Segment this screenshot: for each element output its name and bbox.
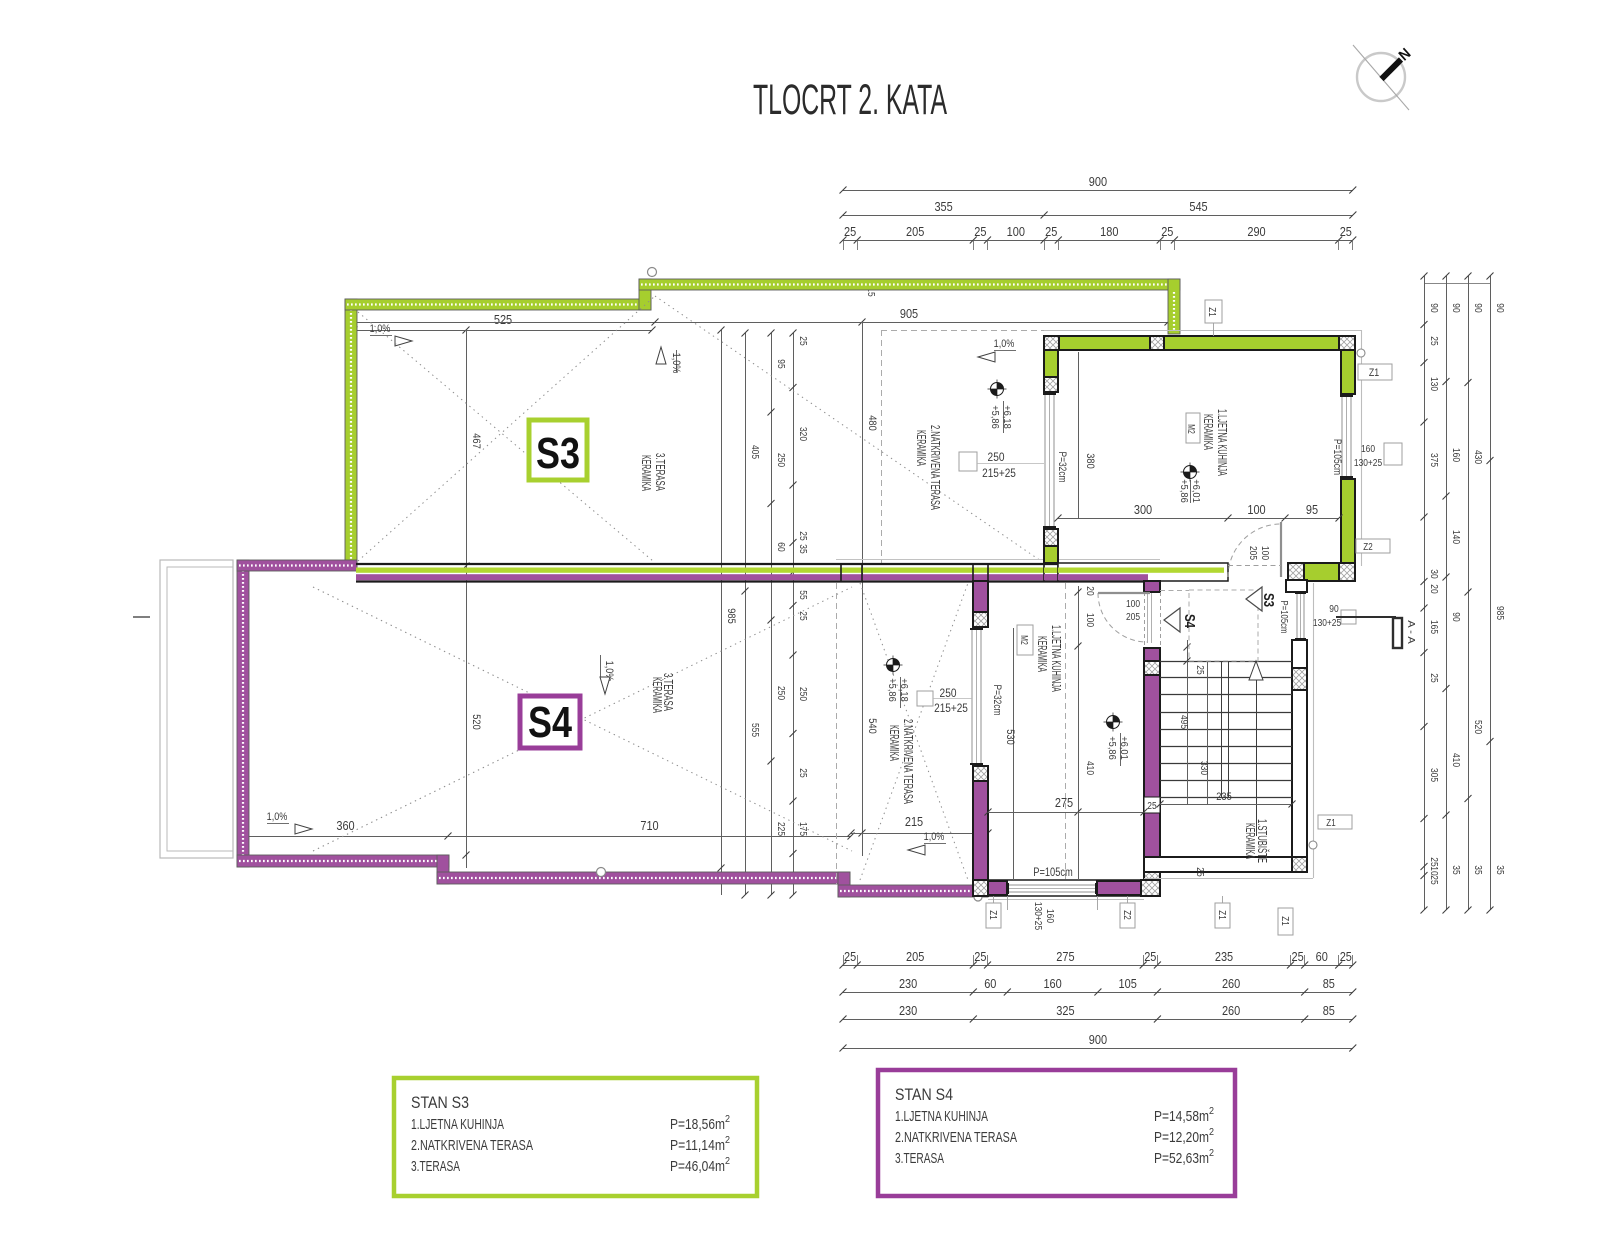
svg-text:530: 530 [1004, 729, 1016, 745]
svg-text:300: 300 [1134, 502, 1152, 517]
svg-text:320: 320 [797, 427, 808, 441]
svg-text:A - A: A - A [1405, 620, 1416, 644]
svg-text:P=18,56m: P=18,56m [670, 1116, 725, 1133]
svg-text:25: 25 [1194, 867, 1205, 877]
svg-text:520: 520 [1472, 720, 1483, 734]
svg-text:25: 25 [1045, 224, 1057, 239]
svg-text:25: 25 [797, 768, 808, 778]
svg-text:+5,86: +5,86 [989, 405, 1000, 429]
svg-text:25: 25 [1144, 949, 1156, 964]
svg-text:355: 355 [934, 199, 952, 214]
svg-text:25: 25 [844, 224, 856, 239]
svg-text:130+25: 130+25 [1032, 902, 1043, 931]
svg-text:1,0%: 1,0% [267, 811, 288, 823]
svg-text:225: 225 [775, 822, 786, 836]
svg-text:KERAMIKA: KERAMIKA [1035, 636, 1049, 672]
svg-text:30: 30 [1428, 569, 1439, 579]
svg-text:Z2: Z2 [1121, 910, 1132, 920]
svg-text:100: 100 [1259, 546, 1270, 560]
svg-text:90: 90 [1329, 604, 1339, 615]
svg-text:P=14,58m: P=14,58m [1154, 1108, 1209, 1125]
svg-text:495: 495 [1178, 715, 1189, 729]
svg-text:S4: S4 [528, 698, 572, 747]
svg-text:2.NATKRIVENA TERASA: 2.NATKRIVENA TERASA [895, 1129, 1017, 1146]
svg-text:90: 90 [1450, 612, 1461, 622]
svg-text:KERAMIKA: KERAMIKA [887, 725, 901, 761]
svg-text:430: 430 [1472, 450, 1483, 464]
svg-text:1.LJETNA KUHINJA: 1.LJETNA KUHINJA [1215, 409, 1229, 476]
svg-text:3.TERASA: 3.TERASA [895, 1150, 944, 1167]
svg-text:2: 2 [1209, 1127, 1214, 1138]
svg-text:1,0%: 1,0% [670, 353, 682, 374]
svg-text:P=46,04m: P=46,04m [670, 1158, 725, 1175]
svg-text:P=11,14m: P=11,14m [670, 1137, 725, 1154]
svg-text:TLOCRT 2. KATA: TLOCRT 2. KATA [753, 76, 947, 124]
svg-text:1,0%: 1,0% [370, 323, 391, 335]
svg-text:467: 467 [470, 433, 482, 449]
svg-text:165: 165 [1428, 620, 1439, 634]
svg-text:M2: M2 [1018, 635, 1029, 645]
svg-text:25: 25 [974, 224, 986, 239]
svg-text:90: 90 [1494, 303, 1505, 313]
svg-text:Z1: Z1 [1206, 307, 1217, 317]
svg-text:25: 25 [1340, 949, 1352, 964]
svg-text:25: 25 [797, 531, 808, 541]
svg-text:25: 25 [1147, 801, 1157, 812]
svg-text:95: 95 [775, 359, 786, 369]
svg-text:250: 250 [797, 687, 808, 701]
svg-text:250: 250 [940, 686, 957, 700]
svg-text:130+25: 130+25 [1313, 618, 1342, 629]
svg-text:235: 235 [1215, 949, 1233, 964]
svg-text:25: 25 [797, 336, 808, 346]
svg-text:S4: S4 [1181, 614, 1198, 629]
svg-text:985: 985 [1494, 606, 1505, 620]
svg-text:KERAMIKA: KERAMIKA [1243, 823, 1257, 859]
svg-text:35: 35 [1472, 865, 1483, 875]
svg-text:160: 160 [1361, 444, 1375, 455]
svg-text:525: 525 [494, 312, 512, 327]
svg-text:100: 100 [1084, 613, 1095, 627]
svg-text:215: 215 [905, 814, 923, 829]
svg-text:25: 25 [1161, 224, 1173, 239]
svg-text:25: 25 [1428, 673, 1439, 683]
svg-text:35: 35 [797, 544, 808, 554]
svg-text:S3: S3 [536, 429, 580, 478]
svg-text:180: 180 [1100, 224, 1118, 239]
svg-text:360: 360 [336, 818, 354, 833]
svg-text:520: 520 [470, 714, 482, 730]
svg-text:205: 205 [1126, 612, 1140, 623]
svg-text:M2: M2 [1185, 424, 1196, 434]
svg-text:KERAMIKA: KERAMIKA [914, 430, 928, 466]
svg-text:480: 480 [866, 415, 878, 431]
svg-text:380: 380 [1084, 453, 1096, 469]
svg-text:2: 2 [725, 1156, 730, 1167]
svg-text:100: 100 [1247, 502, 1265, 517]
svg-text:P=105cm: P=105cm [1278, 601, 1289, 634]
svg-text:60: 60 [1316, 949, 1328, 964]
svg-text:2: 2 [1209, 1106, 1214, 1117]
svg-text:60: 60 [984, 976, 996, 991]
svg-text:1.LJETNA KUHINJA: 1.LJETNA KUHINJA [411, 1116, 504, 1133]
svg-text:100: 100 [1126, 599, 1140, 610]
svg-text:305: 305 [1428, 768, 1439, 782]
svg-text:KERAMIKA: KERAMIKA [639, 455, 653, 491]
svg-text:205: 205 [1247, 546, 1258, 560]
svg-text:P=12,20m: P=12,20m [1154, 1129, 1209, 1146]
svg-text:3.TERASA: 3.TERASA [411, 1158, 460, 1175]
svg-text:205: 205 [906, 949, 924, 964]
svg-text:405: 405 [749, 445, 760, 459]
svg-text:160: 160 [1043, 976, 1061, 991]
svg-text:Z1: Z1 [987, 910, 998, 920]
svg-text:275: 275 [1055, 795, 1073, 810]
svg-text:2: 2 [725, 1114, 730, 1125]
svg-text:555: 555 [749, 723, 760, 737]
svg-text:STAN S3: STAN S3 [411, 1093, 469, 1112]
svg-text:250: 250 [775, 453, 786, 467]
svg-text:410: 410 [1084, 761, 1095, 775]
svg-text:60: 60 [775, 542, 786, 552]
svg-text:2.NATKRIVENA TERASA: 2.NATKRIVENA TERASA [411, 1137, 533, 1154]
svg-text:260: 260 [1222, 1003, 1240, 1018]
svg-text:25: 25 [974, 949, 986, 964]
svg-text:260: 260 [1222, 976, 1240, 991]
svg-text:Z1: Z1 [1369, 367, 1379, 379]
svg-text:540: 540 [866, 718, 878, 734]
svg-text:90: 90 [1450, 303, 1461, 313]
svg-text:+6,01: +6,01 [1190, 479, 1201, 503]
svg-text:100: 100 [1007, 224, 1025, 239]
svg-text:25: 25 [1340, 224, 1352, 239]
svg-text:3.TERASA: 3.TERASA [653, 453, 667, 491]
svg-text:900: 900 [1089, 174, 1107, 189]
svg-text:P=52,63m: P=52,63m [1154, 1150, 1209, 1167]
svg-text:25: 25 [1428, 875, 1439, 885]
svg-text:230: 230 [899, 1003, 917, 1018]
svg-text:Z1: Z1 [1326, 818, 1336, 829]
svg-text:+6,01: +6,01 [1118, 736, 1129, 760]
svg-text:Z1: Z1 [1216, 910, 1227, 920]
svg-text:Z1: Z1 [1279, 916, 1290, 926]
svg-text:230: 230 [899, 976, 917, 991]
svg-text:710: 710 [640, 818, 658, 833]
svg-text:+6,18: +6,18 [898, 678, 909, 702]
svg-text:140: 140 [1450, 530, 1461, 544]
svg-text:325: 325 [1056, 1003, 1074, 1018]
svg-text:175: 175 [797, 822, 808, 836]
svg-text:160: 160 [1044, 909, 1055, 923]
svg-text:25: 25 [1292, 949, 1304, 964]
svg-text:25: 25 [1194, 665, 1205, 675]
svg-text:55: 55 [797, 590, 808, 600]
svg-text:905: 905 [900, 306, 918, 321]
svg-text:Z2: Z2 [1363, 542, 1373, 553]
svg-text:20: 20 [1428, 584, 1439, 594]
svg-text:105: 105 [1119, 976, 1137, 991]
svg-text:900: 900 [1089, 1032, 1107, 1047]
svg-text:35: 35 [1450, 865, 1461, 875]
svg-text:KERAMIKA: KERAMIKA [650, 677, 664, 713]
svg-text:130+25: 130+25 [1354, 458, 1383, 469]
svg-text:1.LJETNA KUHINJA: 1.LJETNA KUHINJA [1049, 625, 1063, 692]
svg-text:985: 985 [725, 608, 737, 624]
svg-text:25: 25 [1428, 336, 1439, 346]
svg-text:2: 2 [1209, 1148, 1214, 1159]
svg-text:90: 90 [1472, 303, 1483, 313]
svg-text:250: 250 [775, 686, 786, 700]
svg-text:235: 235 [1216, 791, 1232, 803]
svg-text:90: 90 [1428, 303, 1439, 313]
svg-text:+6,18: +6,18 [1001, 405, 1012, 429]
svg-text:85: 85 [1323, 1003, 1335, 1018]
svg-text:S3: S3 [1260, 593, 1277, 607]
svg-text:85: 85 [1323, 976, 1335, 991]
svg-text:95: 95 [1306, 502, 1318, 517]
svg-text:P=105cm: P=105cm [1033, 865, 1073, 879]
svg-text:P=105cm: P=105cm [1331, 439, 1343, 475]
svg-text:P=32cm: P=32cm [991, 685, 1003, 716]
svg-text:545: 545 [1189, 199, 1207, 214]
svg-text:25: 25 [844, 949, 856, 964]
svg-text:1,0%: 1,0% [994, 338, 1015, 350]
svg-text:275: 275 [1056, 949, 1074, 964]
svg-text:KERAMIKA: KERAMIKA [1201, 414, 1215, 450]
svg-text:205: 205 [906, 224, 924, 239]
svg-text:250: 250 [988, 450, 1005, 464]
svg-text:35: 35 [1494, 865, 1505, 875]
svg-text:2: 2 [725, 1135, 730, 1146]
svg-text:2.NATKRIVENA TERASA: 2.NATKRIVENA TERASA [901, 719, 915, 804]
svg-text:130: 130 [1428, 377, 1439, 391]
svg-text:STAN S4: STAN S4 [895, 1085, 953, 1104]
svg-text:215+25: 215+25 [934, 701, 968, 715]
svg-text:+5,86: +5,86 [1178, 479, 1189, 503]
svg-text:160: 160 [1450, 448, 1461, 462]
svg-text:2.NATKRIVENA TERASA: 2.NATKRIVENA TERASA [928, 425, 942, 510]
svg-text:330: 330 [1198, 761, 1209, 775]
svg-text:P=32cm: P=32cm [1056, 452, 1068, 483]
svg-text:1.LJETNA KUHINJA: 1.LJETNA KUHINJA [895, 1108, 988, 1125]
svg-text:290: 290 [1247, 224, 1265, 239]
svg-text:410: 410 [1450, 753, 1461, 767]
svg-text:20: 20 [1084, 586, 1095, 596]
svg-text:215+25: 215+25 [982, 466, 1016, 480]
svg-text:1,0%: 1,0% [924, 831, 945, 843]
svg-text:+5,86: +5,86 [886, 678, 897, 702]
svg-text:375: 375 [1428, 453, 1439, 467]
svg-text:+5,86: +5,86 [1106, 736, 1117, 760]
